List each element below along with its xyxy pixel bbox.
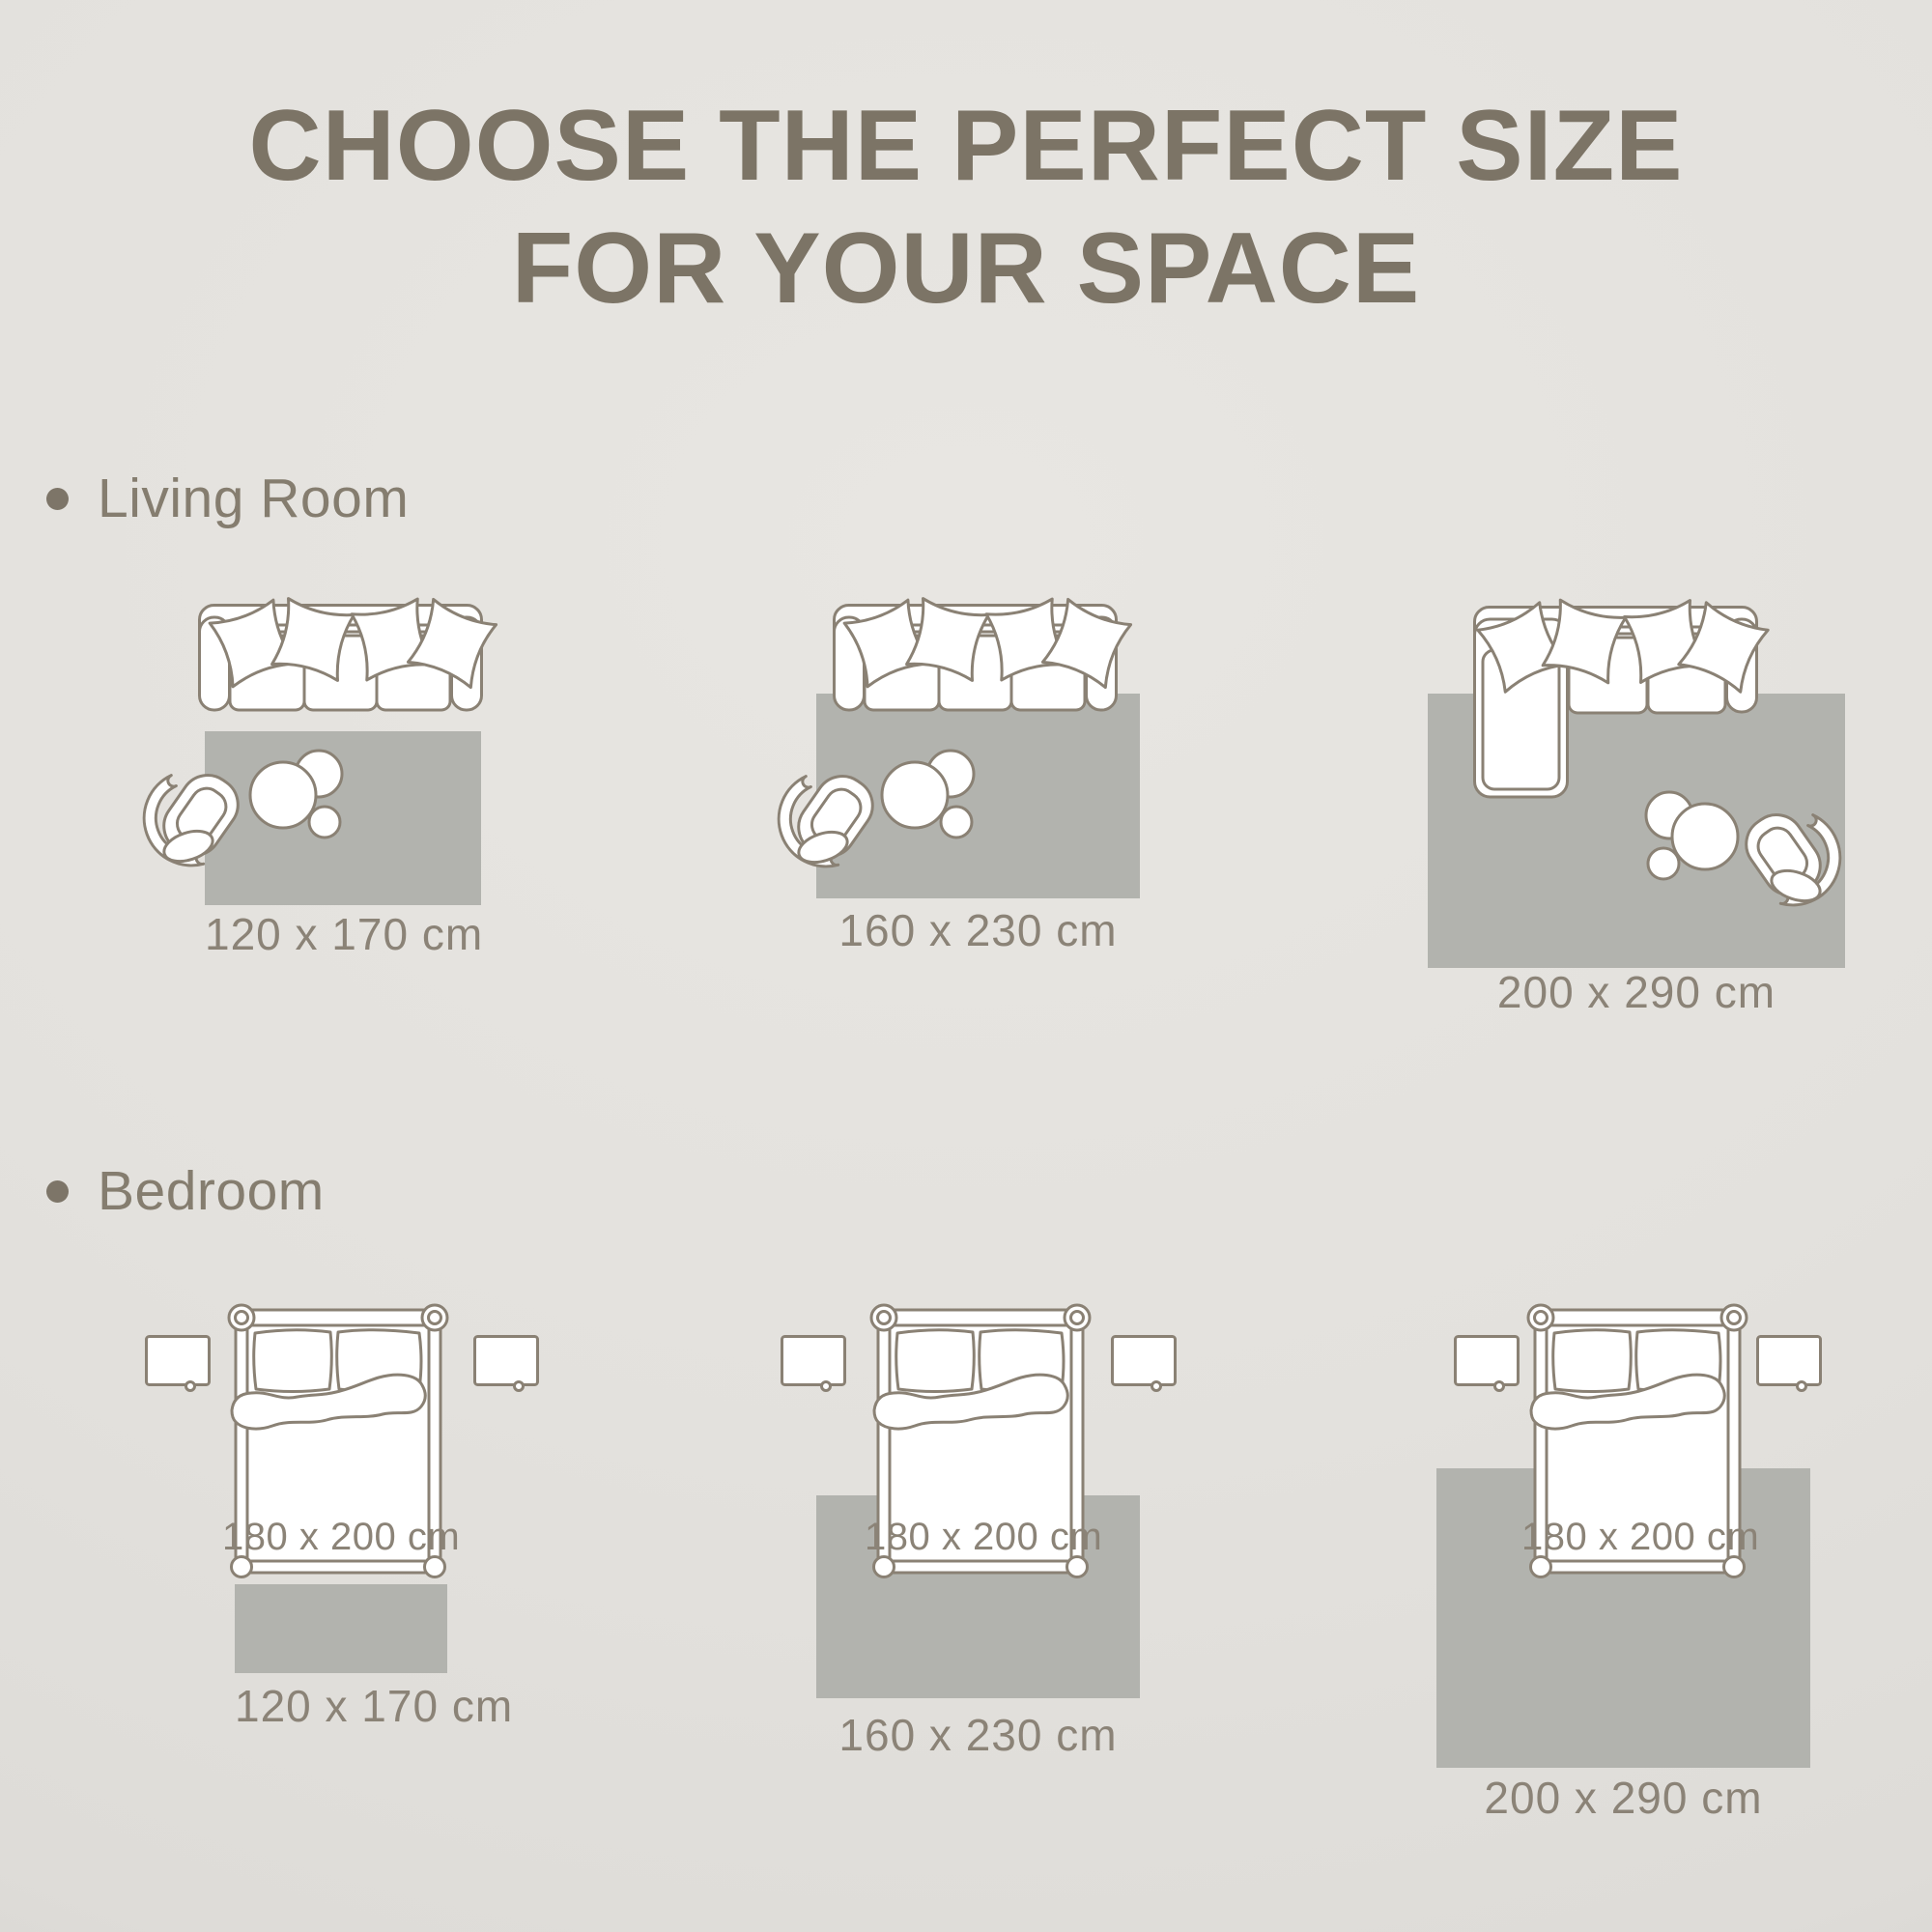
rug-size-label: 200 x 290 cm (1428, 965, 1845, 1019)
nightstand-icon (145, 1335, 211, 1393)
rug-size-label: 120 x 170 cm (205, 907, 481, 961)
bed-size-label: 180 x 200 cm (1521, 1514, 1753, 1560)
living-room-layout-2: 160 x 230 cm (773, 594, 1188, 990)
rug-size-label: 200 x 290 cm (1436, 1771, 1810, 1825)
armchair-icon (141, 760, 247, 880)
bed-size-label: 180 x 200 cm (865, 1514, 1096, 1560)
coffee-table-icon (240, 741, 355, 849)
rug-size-label: 160 x 230 cm (816, 903, 1140, 957)
section-label-bedroom: Bedroom (98, 1159, 325, 1223)
bedroom-layout-3: 180 x 200 cm 200 x 290 cm (1410, 1285, 1855, 1835)
rug-size-label: 160 x 230 cm (816, 1708, 1140, 1762)
section-header-living-room: Living Room (46, 467, 409, 530)
nightstand-icon (1111, 1335, 1177, 1393)
rug (235, 1584, 447, 1673)
living-room-layout-3: 200 x 290 cm (1410, 594, 1855, 1029)
armchair-icon (776, 761, 882, 881)
bullet-icon (46, 1180, 69, 1203)
coffee-table-icon (871, 741, 987, 849)
rug-size-label: 120 x 170 cm (235, 1679, 447, 1733)
armchair-icon (1737, 800, 1843, 920)
nightstand-icon (781, 1335, 846, 1393)
title-line-2: FOR YOUR SPACE (0, 208, 1932, 330)
sofa-icon (833, 604, 1118, 712)
section-label-living-room: Living Room (98, 467, 409, 530)
coffee-table-icon (1633, 782, 1748, 891)
nightstand-icon (473, 1335, 539, 1393)
sofa-icon (198, 604, 483, 712)
bullet-icon (46, 488, 69, 510)
page-title: CHOOSE THE PERFECT SIZE FOR YOUR SPACE (0, 85, 1932, 330)
living-room-layout-1: 120 x 170 cm (135, 594, 551, 990)
nightstand-icon (1454, 1335, 1520, 1393)
section-header-bedroom: Bedroom (46, 1159, 325, 1223)
bedroom-layout-1: 180 x 200 cm 120 x 170 cm (135, 1285, 551, 1739)
bed-size-label: 180 x 200 cm (222, 1514, 454, 1560)
rug-size-guide-infographic: CHOOSE THE PERFECT SIZE FOR YOUR SPACE L… (0, 0, 1932, 1932)
sectional-sofa-icon (1473, 606, 1758, 799)
bedroom-layout-2: 180 x 200 cm 160 x 230 cm (773, 1285, 1188, 1777)
nightstand-icon (1756, 1335, 1822, 1393)
title-line-1: CHOOSE THE PERFECT SIZE (0, 85, 1932, 208)
